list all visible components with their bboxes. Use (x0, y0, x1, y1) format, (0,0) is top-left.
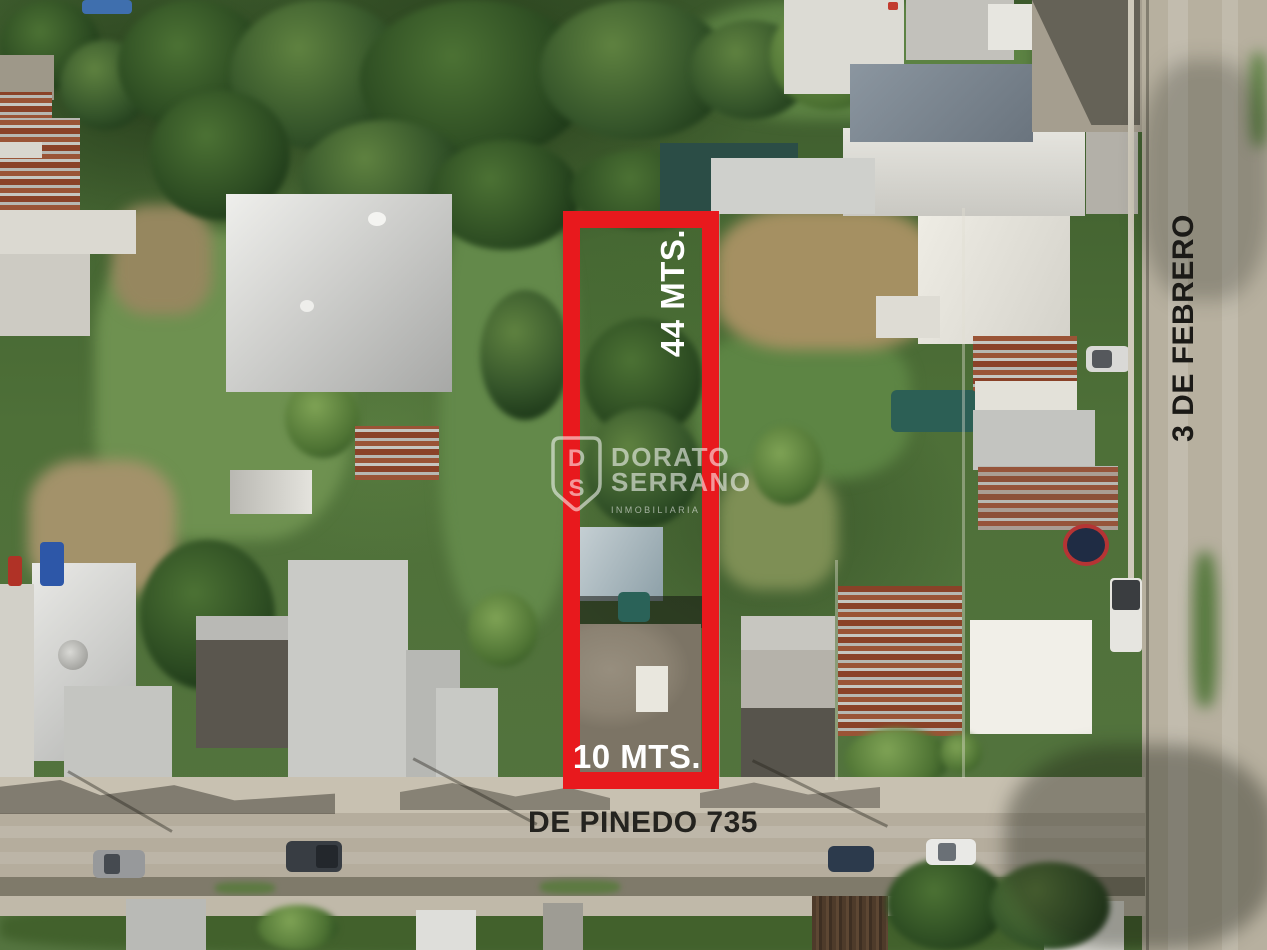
monogram-bottom: S (568, 475, 584, 502)
aerial-photo: 44 MTS. 10 MTS. DE PINEDO 735 3 DE FEBRE… (0, 0, 1267, 950)
tree (468, 592, 538, 667)
dark-roof (741, 708, 835, 778)
rust-roof (355, 426, 439, 480)
brand-tagline: INMOBILIARIA (611, 498, 752, 523)
parked-car (828, 846, 874, 872)
gray-roof-edge (196, 616, 294, 642)
side-street-surface (1142, 0, 1267, 950)
grass-verge (1250, 52, 1267, 147)
blue-car (40, 542, 64, 586)
bush (940, 733, 982, 773)
gray-roof (741, 616, 835, 654)
side-street-label: 3 DE FEBRERO (1167, 214, 1201, 442)
white-roof (0, 210, 136, 254)
brand-name-line2: SERRANO (611, 470, 752, 495)
grass-verge (1193, 552, 1217, 707)
brand-names: DORATO SERRANO INMOBILIARIA (611, 436, 752, 523)
silver-roof (64, 686, 172, 784)
roof-vent (368, 212, 386, 226)
silver-roof (436, 688, 498, 790)
large-silver-roof (226, 194, 452, 392)
boundary-wall (1128, 0, 1134, 578)
brand-shield-icon: D S (551, 436, 602, 512)
rust-gray-roof (978, 466, 1118, 530)
trampoline (1063, 524, 1109, 566)
bush (752, 425, 822, 505)
car-windshield (104, 854, 120, 874)
red-object (888, 2, 898, 10)
white-roof (416, 910, 476, 950)
gray-roof (0, 254, 90, 336)
white-roof (876, 296, 940, 338)
tree-cluster (990, 862, 1110, 950)
car-windshield (938, 843, 956, 861)
tree-cluster (886, 858, 1006, 950)
rust-roof-large (838, 586, 962, 736)
curb-line (1146, 0, 1149, 950)
watermark: D S DORATO SERRANO INMOBILIARIA (551, 436, 752, 523)
tree (258, 905, 338, 950)
gray-roof (543, 903, 583, 950)
concrete-driveway (1032, 0, 1142, 132)
lot-frontage-label: 10 MTS. (573, 738, 701, 776)
corrugated-roof (126, 899, 206, 950)
white-flat-roof (970, 620, 1092, 734)
rust-roof (0, 118, 80, 210)
front-street-label: DE PINEDO 735 (528, 806, 758, 840)
brown-roof (812, 896, 888, 950)
tree-row (480, 290, 570, 420)
weathered-dark-roof (196, 640, 294, 748)
roof-vent (300, 300, 314, 312)
shed-roof (230, 470, 312, 514)
truck-cab (1112, 580, 1140, 610)
gray-roof (741, 650, 835, 712)
fence-line (835, 560, 838, 780)
silver-roof (711, 158, 875, 214)
corrugated-roof (288, 560, 408, 788)
fence-line (962, 208, 965, 778)
slate-roof (850, 64, 1033, 142)
verge-grass (215, 882, 275, 894)
white-roof (0, 142, 42, 158)
pickup-bed (316, 845, 338, 868)
car-windshield (1092, 350, 1112, 368)
street-wear-track (1222, 0, 1238, 950)
lot-depth-label: 44 MTS. (654, 229, 692, 357)
white-flat-roof (918, 206, 1070, 344)
verge-grass (540, 880, 620, 894)
silver-roof (973, 410, 1095, 470)
white-roof (0, 584, 34, 788)
red-object (8, 556, 22, 586)
blue-tarp (82, 0, 132, 14)
monogram-top: D (568, 445, 585, 472)
satellite-dish (58, 640, 88, 670)
street-wear-track (1168, 0, 1188, 950)
tree-canopy (430, 140, 580, 250)
